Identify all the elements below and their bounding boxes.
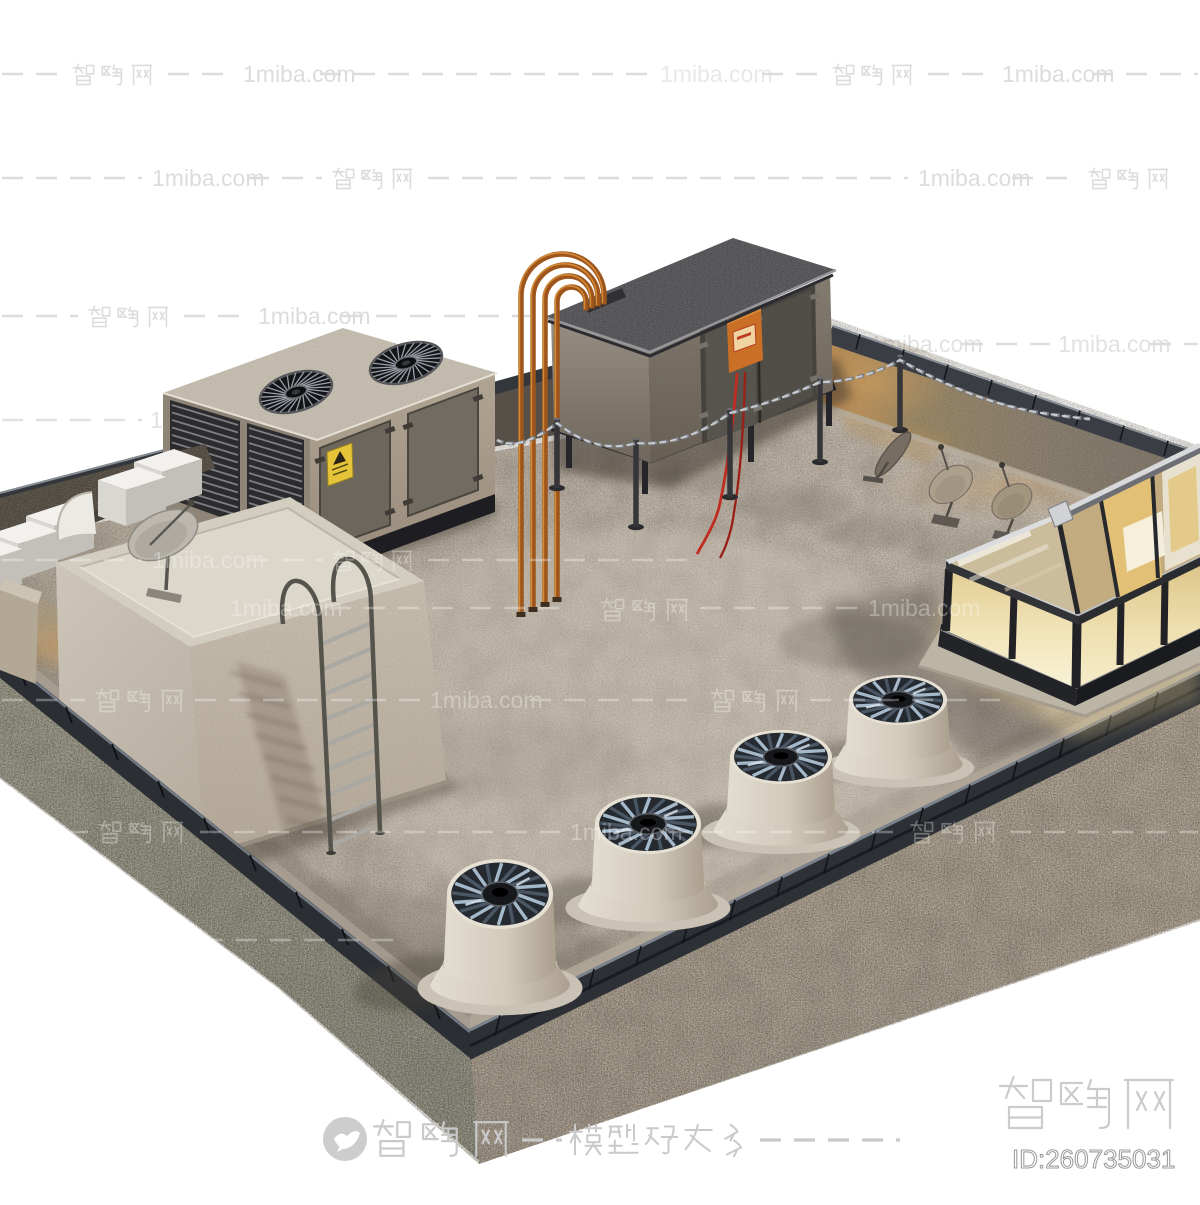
svg-text:1miba.com: 1miba.com [430,687,542,713]
svg-text:1miba.com: 1miba.com [570,819,682,845]
svg-text:1miba.com: 1miba.com [660,61,772,87]
svg-text:1miba.com: 1miba.com [152,547,264,573]
svg-text:1miba.com: 1miba.com [230,595,342,621]
svg-text:1miba.com: 1miba.com [868,595,980,621]
svg-text:ID:260735031: ID:260735031 [1012,1144,1175,1174]
svg-text:1miba.com: 1miba.com [152,165,264,191]
